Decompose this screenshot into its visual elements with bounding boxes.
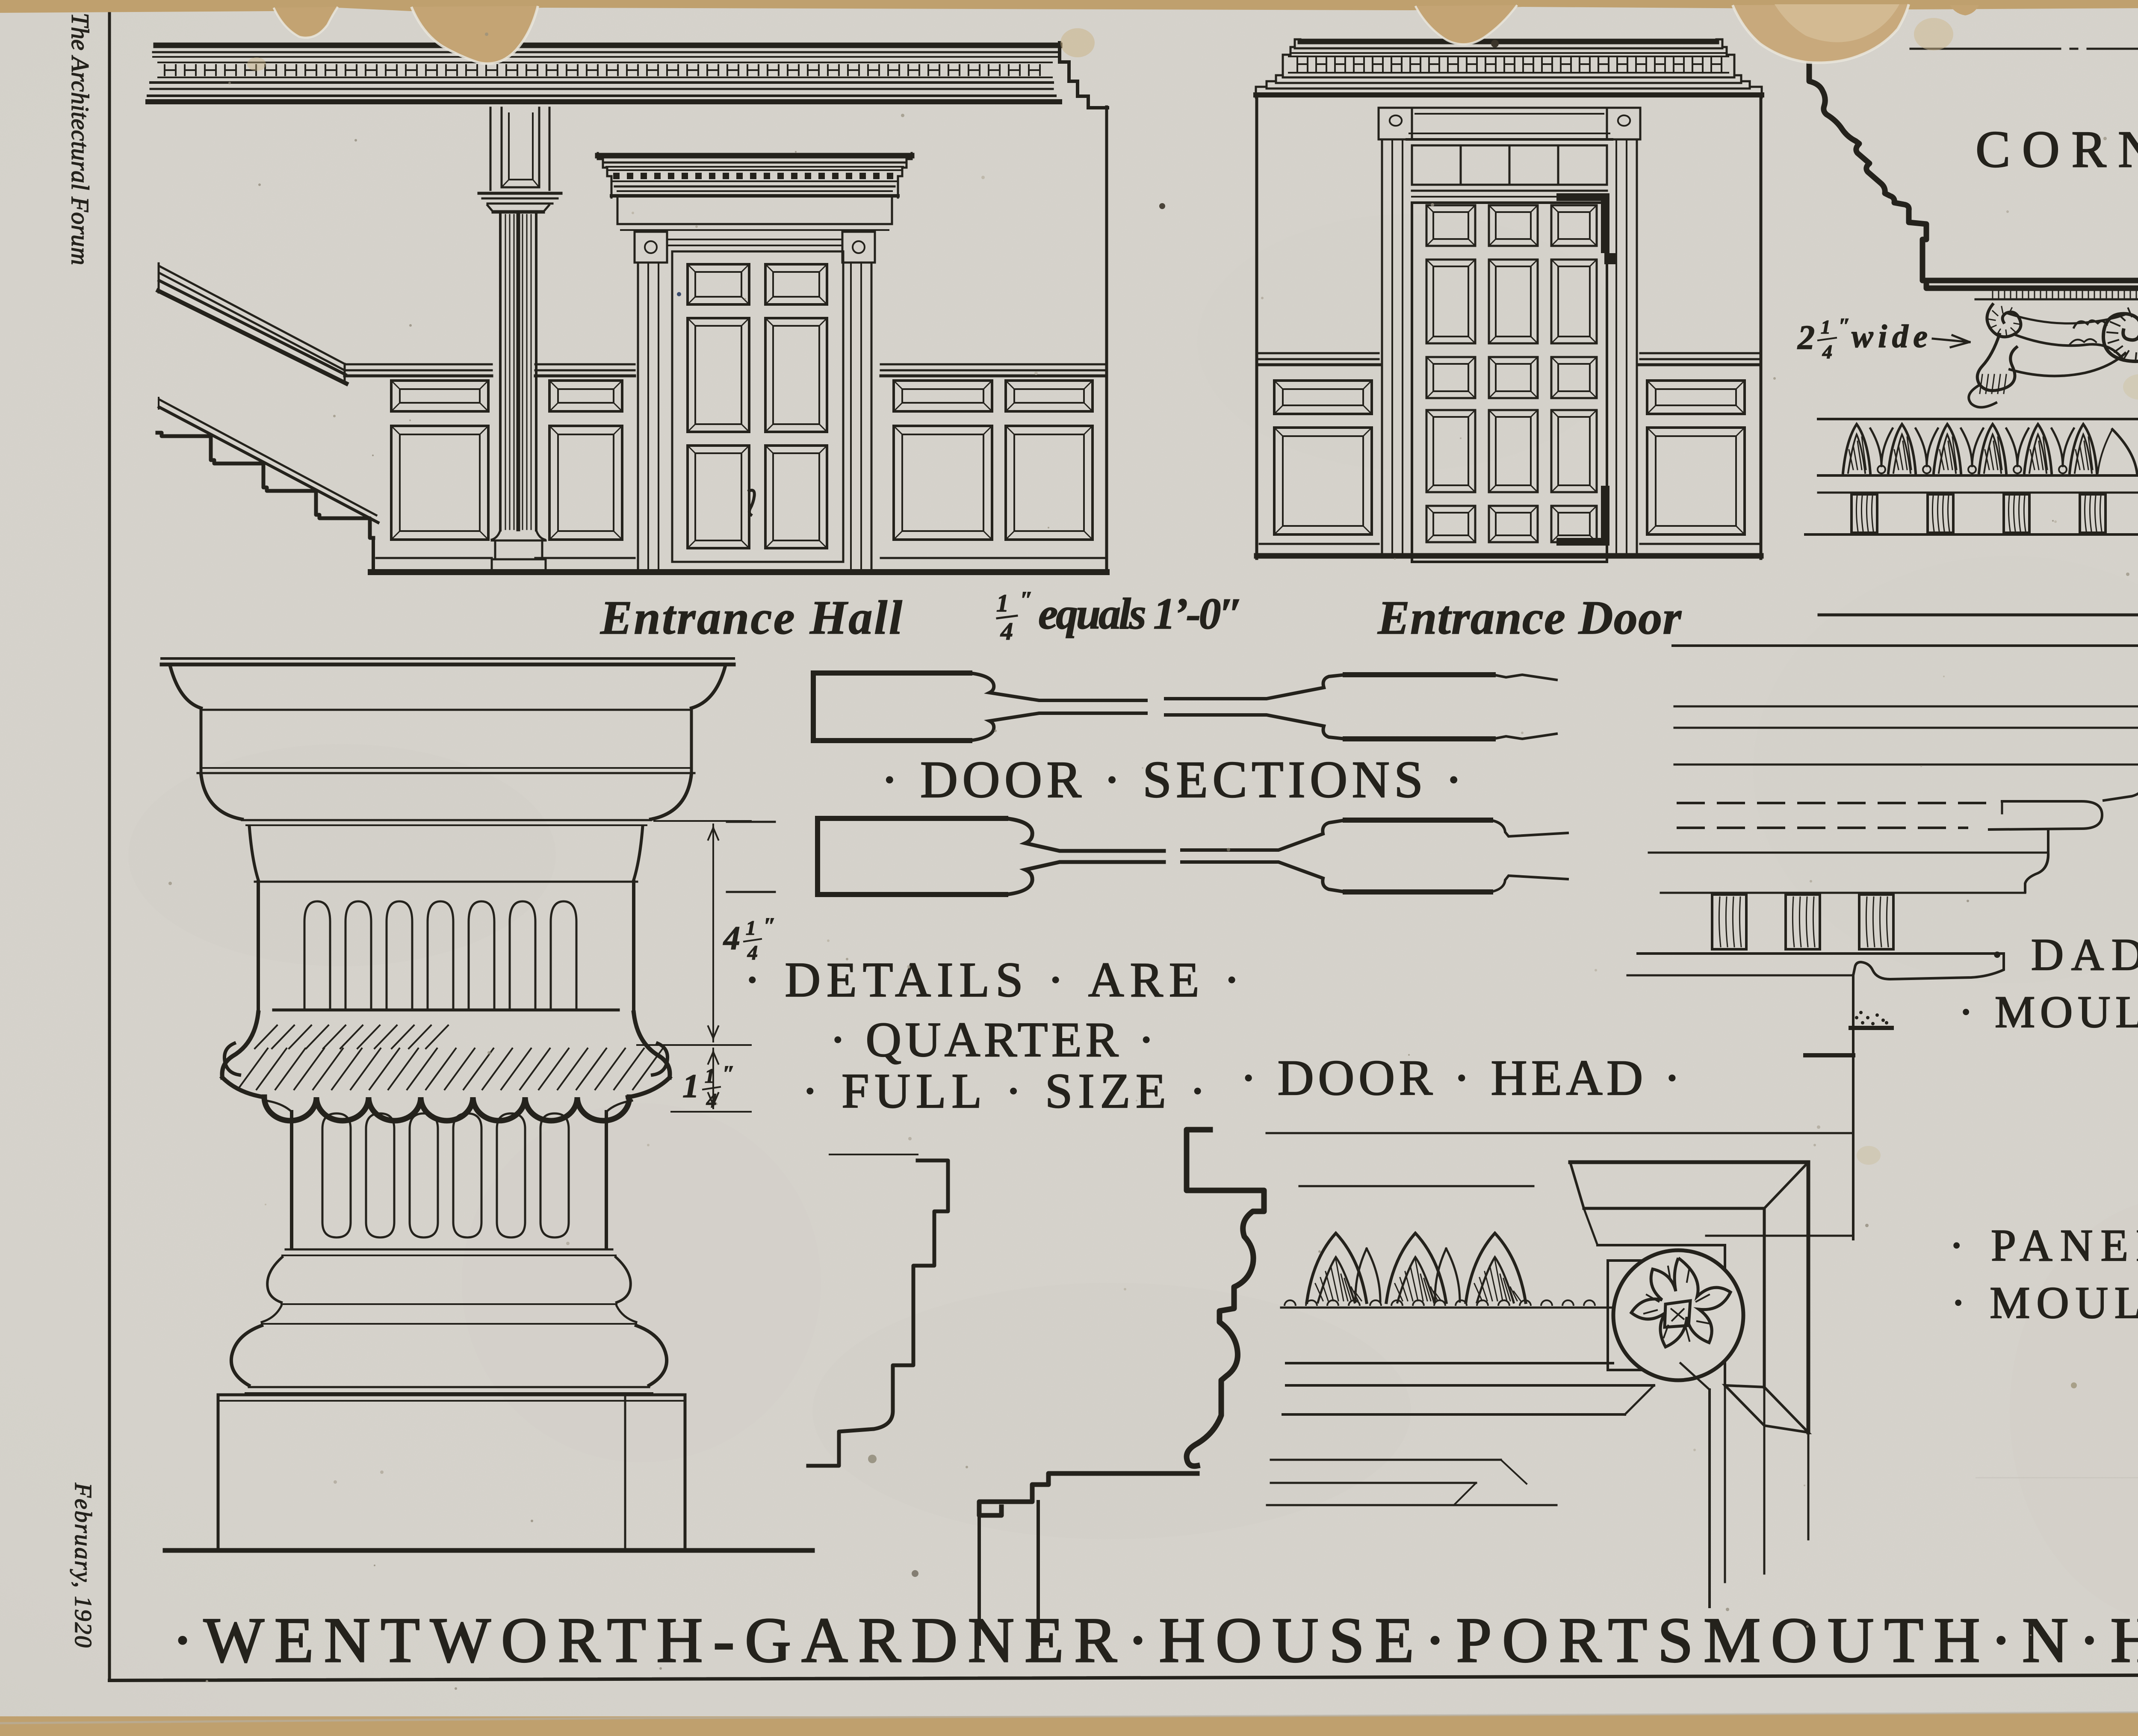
svg-text:1: 1 (705, 1065, 715, 1087)
svg-text:February, 1920: February, 1920 (70, 1482, 96, 1647)
svg-text:4: 4 (723, 919, 740, 957)
svg-text:″: ″ (764, 914, 776, 938)
svg-text:″: ″ (1020, 587, 1033, 612)
svg-text:″: ″ (1839, 313, 1851, 337)
svg-text:1: 1 (746, 917, 756, 939)
svg-text:2: 2 (1797, 319, 1815, 357)
svg-text:· QUARTER ·: · QUARTER · (830, 1013, 1155, 1067)
svg-text:″: ″ (723, 1062, 735, 1086)
svg-text:The Architectural Forum: The Architectural Forum (66, 13, 94, 265)
svg-text:4: 4 (1000, 617, 1013, 645)
svg-text:· DOOR · HEAD ·: · DOOR · HEAD · (1240, 1050, 1680, 1106)
svg-text:1: 1 (682, 1067, 699, 1104)
svg-text:4: 4 (1822, 341, 1832, 363)
svg-text:1: 1 (996, 589, 1009, 617)
svg-text:1: 1 (1821, 316, 1831, 338)
svg-text:4: 4 (706, 1089, 717, 1112)
svg-text:Entrance Hall: Entrance Hall (600, 591, 902, 644)
svg-text:· PANEL ·: · PANEL · (1949, 1220, 2138, 1270)
svg-text:4: 4 (747, 942, 758, 964)
svg-text:Entrance Door: Entrance Door (1377, 591, 1682, 644)
svg-text:equals 1’-0″: equals 1’-0″ (1038, 589, 1243, 638)
svg-text:· DOOR · SECTIONS ·: · DOOR · SECTIONS · (881, 751, 1462, 809)
